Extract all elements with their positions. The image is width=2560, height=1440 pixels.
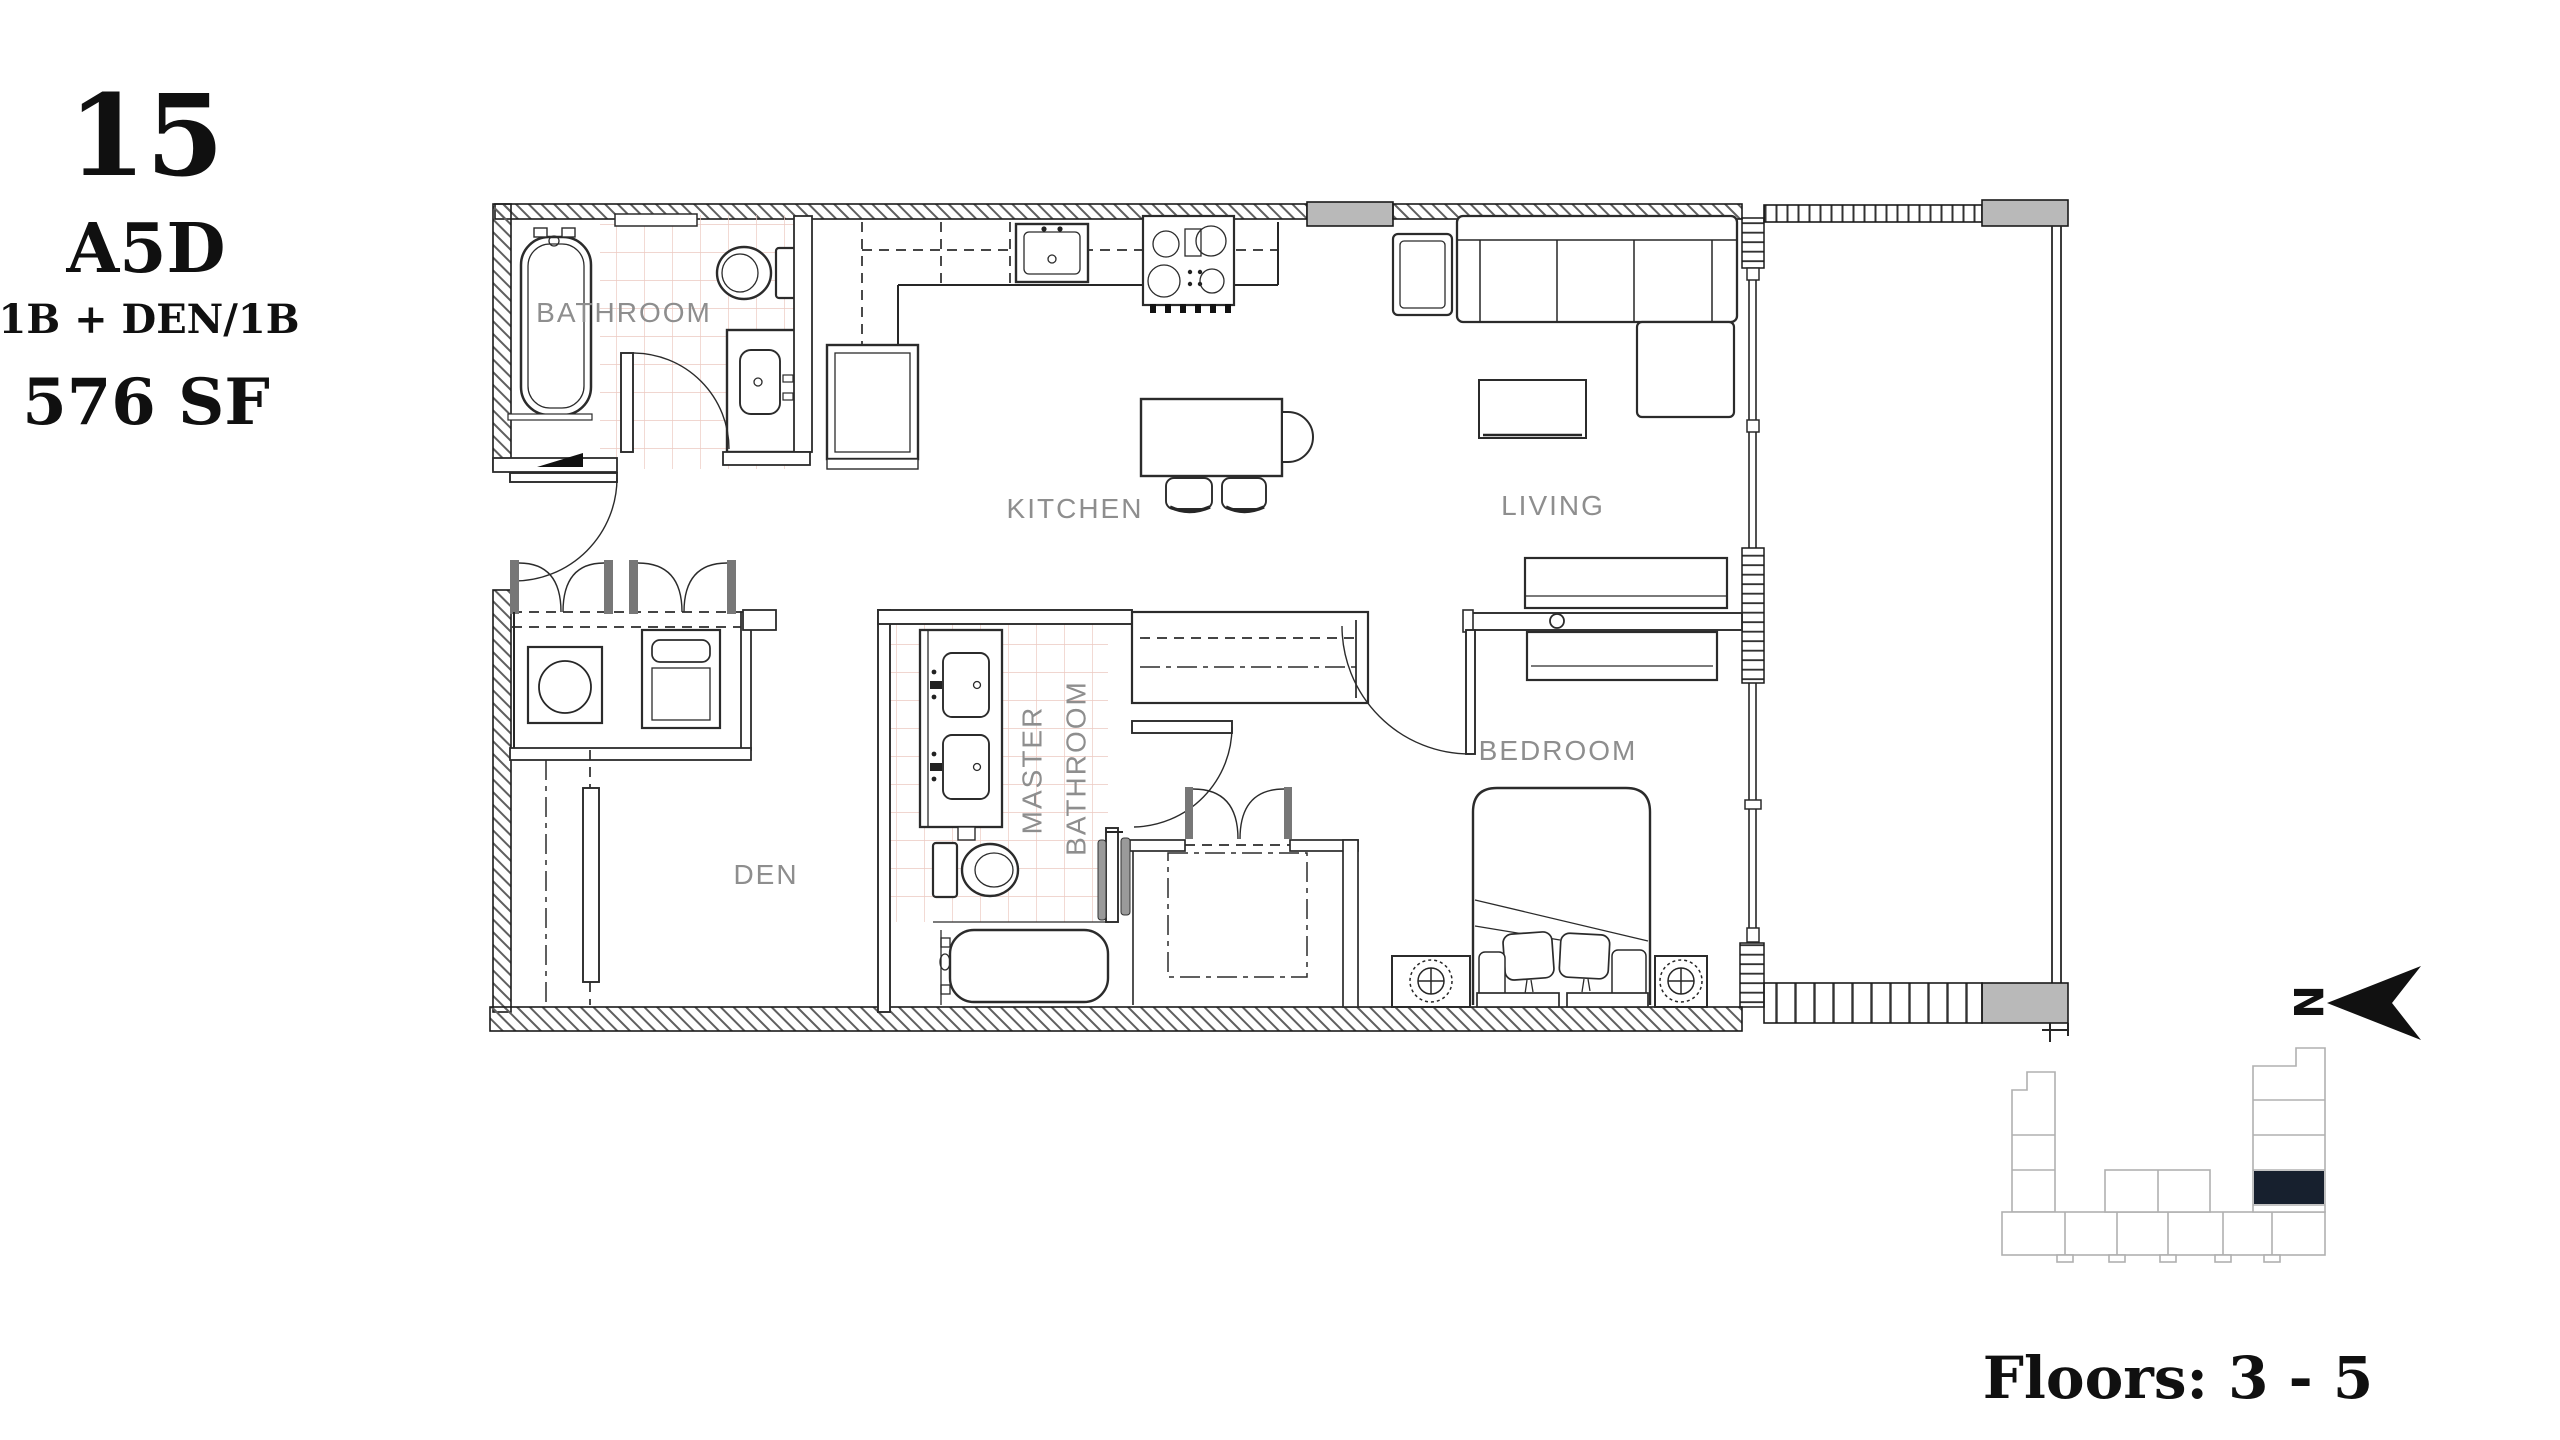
balcony-ladder-bottom — [1740, 943, 1764, 1007]
unit-number: 15 — [68, 71, 224, 202]
wall-column — [1550, 614, 1564, 628]
bathroom-faucet-b — [783, 393, 793, 400]
headboard-left — [1477, 993, 1559, 1007]
mullion-1 — [1747, 268, 1759, 280]
mullion-3 — [1745, 800, 1761, 809]
tub-faucet-b — [562, 228, 575, 237]
storage-inner — [1168, 853, 1307, 977]
top-wall-column — [1307, 202, 1393, 226]
bathroom-label: BATHROOM — [536, 297, 712, 328]
balcony-corner-top — [1982, 200, 2068, 226]
master-toilet-bowl — [962, 844, 1018, 896]
den-sliding-panel — [583, 788, 599, 982]
master-hall-door-swing — [1134, 727, 1232, 827]
island-end-seat — [1282, 412, 1313, 462]
master-hall-door — [1132, 721, 1232, 827]
dryer-lid — [652, 640, 710, 662]
closet-bottom-wall — [510, 748, 751, 760]
master-sink-1 — [943, 653, 989, 717]
laundry-closet — [510, 560, 776, 760]
media-console — [1525, 558, 1727, 608]
wardrobe — [1132, 612, 1368, 703]
sink-knob-b — [1057, 226, 1062, 231]
storage-wall-right — [1343, 840, 1358, 1007]
sofa-chaise — [1637, 322, 1734, 417]
north-arrow-shape — [2327, 966, 2421, 1040]
headboard-right — [1567, 993, 1648, 1007]
north-label: N — [2284, 985, 2330, 1018]
bathroom-sink — [740, 350, 780, 414]
sofa — [1457, 216, 1737, 322]
mullion-4 — [1747, 928, 1759, 942]
bathroom-wall-right — [794, 216, 812, 452]
bedroom-door-leaf — [1466, 630, 1475, 754]
unit-plan-type: 1B + DEN/1B — [0, 296, 300, 343]
master-toilet-tank — [933, 843, 957, 897]
living-room: LIVING — [1393, 216, 1737, 608]
unit-area: 576 SF — [22, 365, 270, 440]
keyplan-left-wing — [2012, 1072, 2055, 1212]
bathroom: BATHROOM — [493, 214, 812, 472]
master-hall-door-leaf — [1132, 721, 1232, 733]
storage-closet — [1121, 787, 1358, 1007]
pillow-left — [1502, 931, 1554, 980]
window-frame-top — [1742, 218, 1764, 268]
floors-label: Floors: 3 - 5 — [1983, 1344, 2374, 1412]
floorplan-page: 15 A5D 1B + DEN/1B 576 SF — [0, 0, 2560, 1440]
master-pocket-door — [1098, 840, 1106, 920]
fridge — [827, 345, 918, 459]
den: DEN — [546, 750, 799, 1005]
balcony-bottom-railing — [1764, 983, 1982, 1023]
entry-door — [510, 473, 617, 581]
dresser — [1527, 632, 1717, 680]
master-sink-2 — [943, 735, 989, 799]
bedroom-wall — [1470, 613, 1742, 630]
master-bath-label-2: BATHROOM — [1061, 680, 1092, 856]
key-plan — [2002, 1048, 2325, 1262]
storage-pocket-door — [1121, 838, 1130, 915]
kitchen-island — [1141, 399, 1282, 476]
closet-door-post-right — [1284, 787, 1292, 839]
tub-ledge — [508, 414, 592, 420]
closet-wall-stub — [743, 610, 776, 630]
closet-door-post-left — [1185, 787, 1193, 839]
balcony-corner-bottom — [1982, 983, 2068, 1023]
storage-top-left — [1130, 840, 1185, 851]
keyplan-unit-highlight — [2254, 1171, 2324, 1204]
north-arrow-icon: N — [2284, 966, 2421, 1040]
master-tub — [950, 930, 1108, 1002]
bedroom-wall-cap — [1463, 610, 1473, 632]
left-wall-upper — [493, 204, 511, 470]
stool-2 — [1222, 478, 1266, 509]
window-frame-mid — [1742, 548, 1764, 683]
balcony-bracket — [2042, 1023, 2068, 1042]
keyplan-bottom-row — [2002, 1212, 2325, 1255]
armchair — [1393, 234, 1452, 315]
den-label: DEN — [733, 859, 798, 890]
master-bath-wall-top — [878, 610, 1132, 624]
entry-door-swing — [514, 478, 617, 581]
bedroom-label: BEDROOM — [1479, 735, 1638, 766]
fridge-base — [827, 459, 918, 469]
left-wall-lower — [493, 590, 511, 1012]
bathroom-wall-bottom-right — [723, 452, 810, 465]
bathroom-door-leaf — [621, 353, 633, 452]
balcony-top-railing — [1764, 205, 1982, 222]
master-bathroom: MASTER BATHROOM — [878, 610, 1132, 1012]
bifold-door-swings — [519, 563, 727, 612]
master-bath-wall-left — [878, 610, 890, 1012]
bifold-posts — [510, 560, 736, 614]
bottom-wall — [490, 1007, 1742, 1031]
keyplan-balcony-notches — [2057, 1255, 2280, 1262]
kitchen-label: KITCHEN — [1007, 493, 1144, 524]
stool-1 — [1166, 478, 1212, 509]
sink-knob-a — [1041, 226, 1046, 231]
bathroom-niche — [615, 214, 697, 226]
master-bath-wall-right — [1106, 828, 1118, 922]
pillow-right — [1559, 933, 1610, 980]
coffee-table — [1479, 380, 1586, 438]
master-bath-label-1: MASTER — [1017, 706, 1048, 835]
bedroom: BEDROOM — [1342, 610, 1742, 1007]
tub-faucet-a — [534, 228, 547, 237]
entry-door-leaf — [510, 473, 617, 482]
living-label: LIVING — [1501, 490, 1605, 521]
kitchen: KITCHEN — [827, 216, 1313, 524]
unit-plan-code: A5D — [65, 209, 225, 289]
closet-shelf-dashes — [512, 612, 748, 627]
mullion-2 — [1747, 420, 1759, 432]
balcony — [1740, 200, 2068, 1042]
window-wall — [1742, 218, 1764, 942]
bathroom-faucet-a — [783, 375, 793, 382]
closet-double-door-swings — [1193, 789, 1284, 839]
wardrobe-box — [1132, 612, 1368, 703]
unit-info: 15 A5D 1B + DEN/1B 576 SF — [0, 71, 300, 440]
closet-right-wall — [741, 612, 751, 750]
tp-holder — [958, 827, 975, 840]
